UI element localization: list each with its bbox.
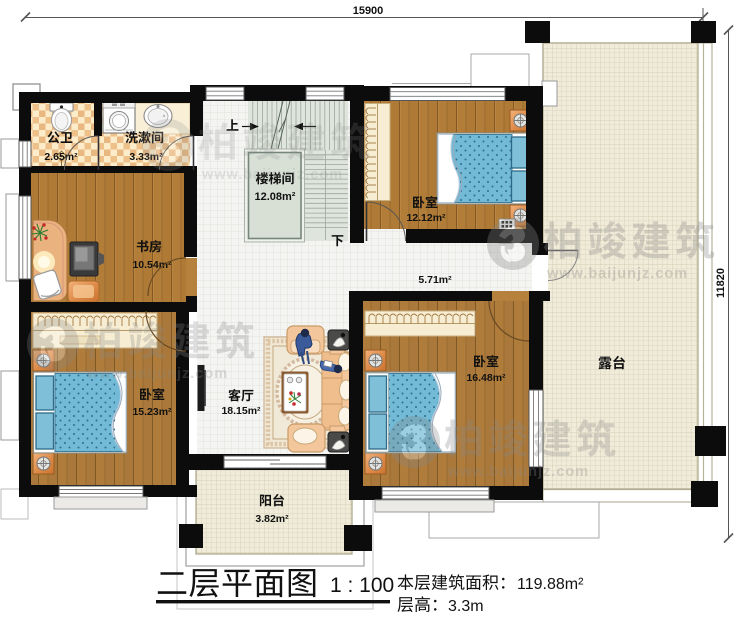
svg-text:10.54m²: 10.54m² — [132, 259, 172, 271]
svg-text:18.15m²: 18.15m² — [221, 405, 261, 417]
svg-text:2.65m²: 2.65m² — [44, 151, 78, 163]
svg-text:5.71m²: 5.71m² — [418, 274, 452, 286]
svg-text:12.08m²: 12.08m² — [255, 191, 296, 203]
svg-text:1 : 100: 1 : 100 — [330, 574, 394, 597]
svg-text:11820: 11820 — [715, 268, 727, 298]
svg-text:15.23m²: 15.23m² — [132, 406, 172, 418]
svg-text:16.48m²: 16.48m² — [466, 372, 506, 384]
svg-text:3.82m²: 3.82m² — [255, 513, 289, 525]
svg-text:119.88m²: 119.88m² — [517, 576, 584, 593]
svg-text:12.12m²: 12.12m² — [406, 212, 446, 224]
svg-text:3.3m: 3.3m — [448, 598, 484, 615]
svg-text:15900: 15900 — [353, 5, 384, 17]
